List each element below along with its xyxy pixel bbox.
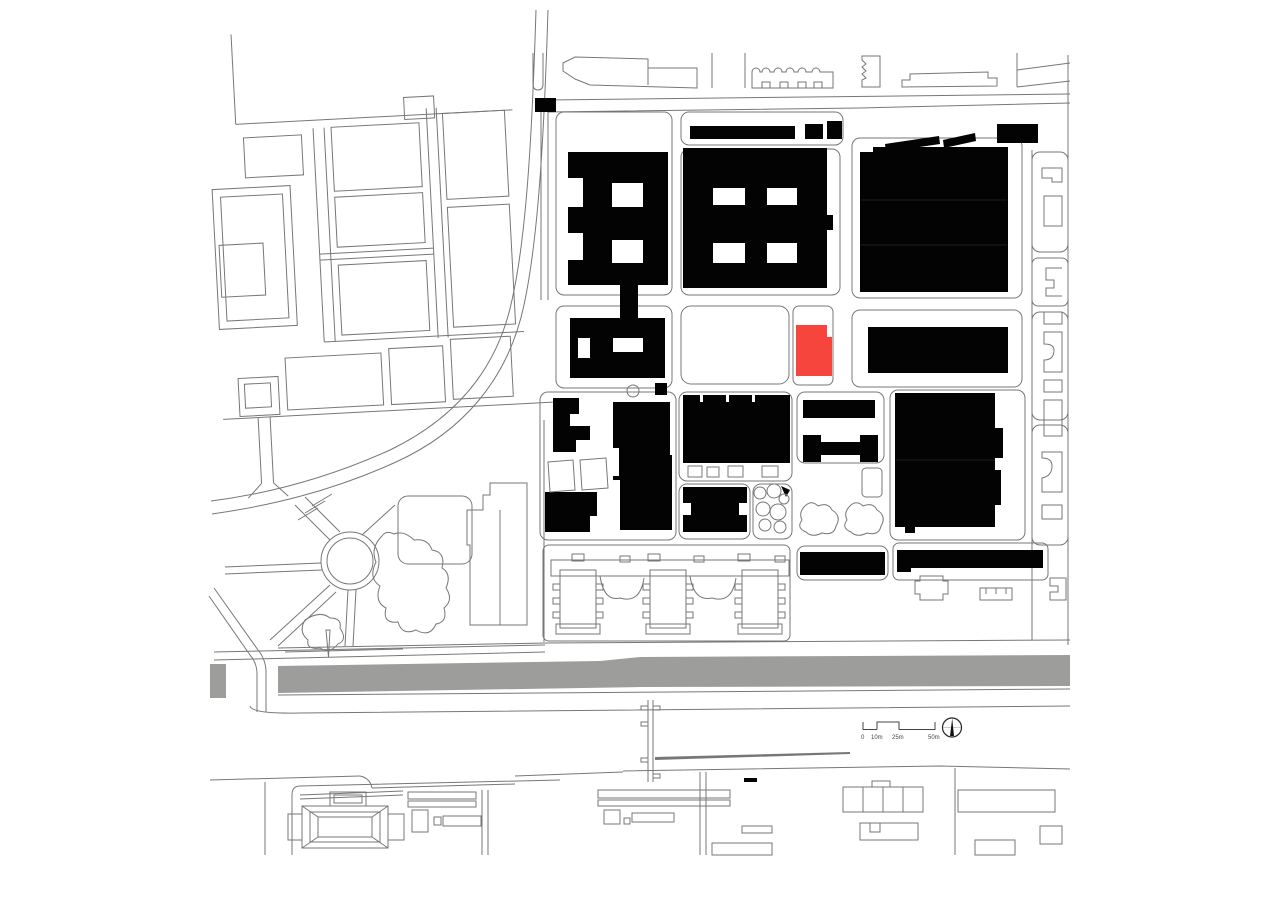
waterway [210, 655, 1070, 698]
south-bank-buildings [210, 766, 1070, 855]
site-plan-drawing: 0 10m 25m 50m [0, 0, 1280, 904]
roundabout-outer [321, 532, 379, 590]
roundabout-inner [327, 538, 373, 584]
residential-wing [553, 570, 603, 634]
scale-label-50m: 50m [928, 735, 940, 741]
park-pond-outline [373, 532, 450, 633]
residential-wing [643, 570, 693, 634]
site-plan: 0 10m 25m 50m [0, 0, 1280, 904]
residential-complex [551, 554, 789, 634]
scale-label-25m: 25m [892, 735, 904, 741]
left-district-blocks [203, 19, 557, 500]
north-arrow-icon [943, 718, 962, 737]
site-building-highlight [796, 325, 832, 376]
building-west-courtyard [568, 152, 668, 285]
scale-label-0: 0 [861, 735, 865, 741]
office-slab-outline [467, 483, 527, 625]
building-southeast-hall [895, 393, 1003, 533]
canal-band [278, 655, 1070, 693]
building-mid-courtyard [683, 148, 827, 288]
scale-bar: 0 10m 25m 50m [861, 722, 940, 741]
scale-label-10m: 10m [871, 735, 883, 741]
park-roundabout [225, 483, 527, 650]
right-column-buildings [1042, 168, 1066, 600]
residential-wing [735, 570, 785, 634]
sweeping-roads [209, 10, 548, 712]
building-northeast-hall [860, 147, 1008, 292]
